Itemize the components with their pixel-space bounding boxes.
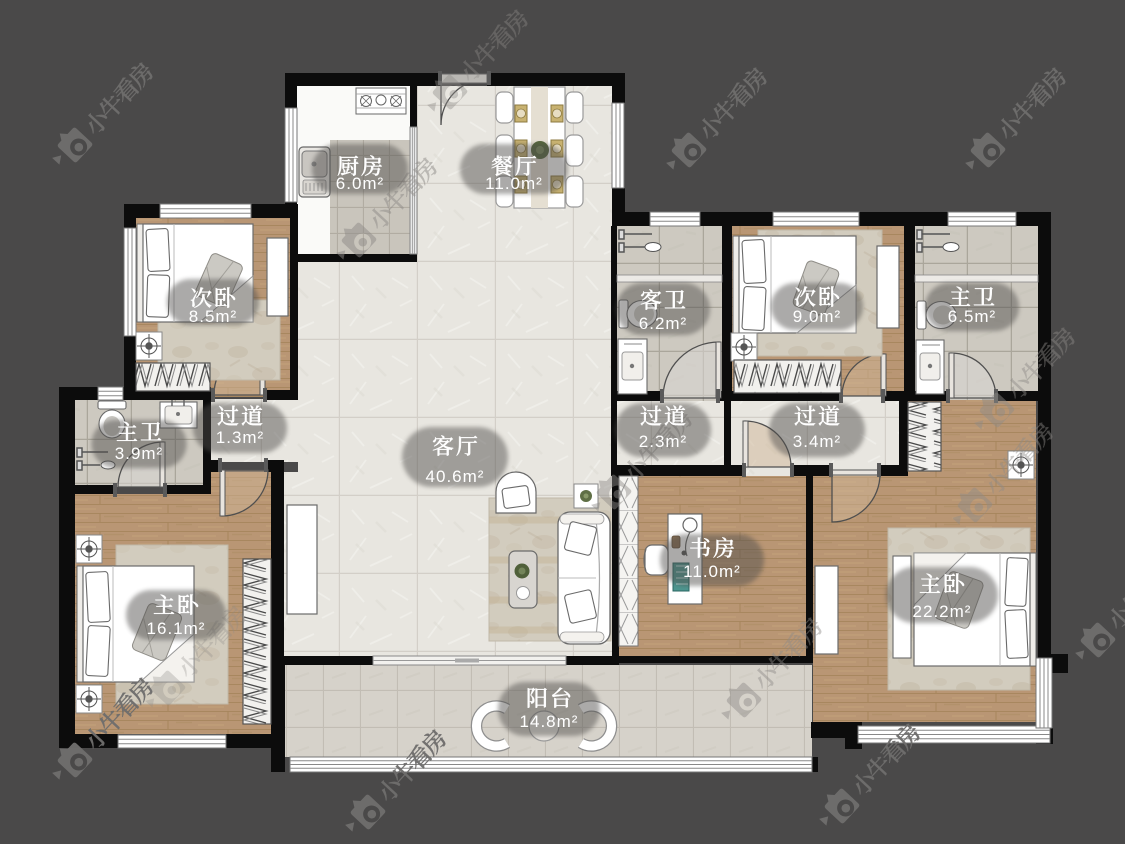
svg-text:6.5m²: 6.5m²	[948, 307, 996, 326]
svg-text:14.8m²: 14.8m²	[520, 712, 579, 731]
svg-text:6.2m²: 6.2m²	[639, 314, 687, 333]
svg-text:1.3m²: 1.3m²	[216, 428, 264, 447]
svg-text:22.2m²: 22.2m²	[913, 602, 972, 621]
svg-text:11.0m²: 11.0m²	[485, 174, 543, 193]
svg-text:6.0m²: 6.0m²	[336, 174, 384, 193]
svg-text:11.0m²: 11.0m²	[683, 562, 741, 581]
svg-text:9.0m²: 9.0m²	[793, 307, 841, 326]
svg-text:16.1m²: 16.1m²	[147, 619, 206, 638]
svg-text:3.4m²: 3.4m²	[793, 432, 841, 451]
svg-text:2.3m²: 2.3m²	[639, 432, 687, 451]
svg-text:3.9m²: 3.9m²	[115, 444, 163, 463]
svg-text:40.6m²: 40.6m²	[426, 467, 485, 486]
svg-text:8.5m²: 8.5m²	[189, 307, 237, 326]
